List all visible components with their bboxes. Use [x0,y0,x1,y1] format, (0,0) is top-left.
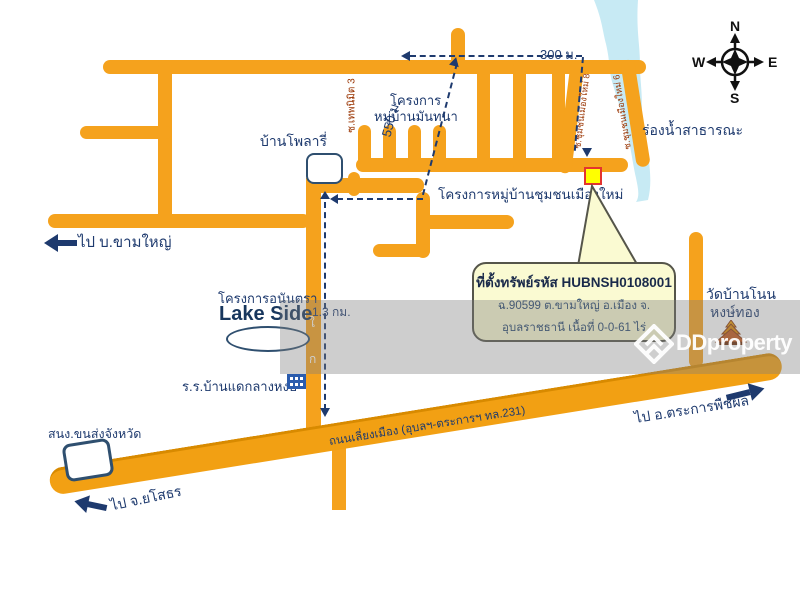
junction-dashed-line [337,198,423,200]
arrowhead-down-icon [582,148,592,157]
callout-property-code: ที่ตั้งทรัพย์รหัส HUBNSH0108001 [474,271,674,293]
arrowhead-down-icon [320,408,330,417]
callout-pointer [556,184,652,268]
ddproperty-logo-text: DDproperty [676,330,792,356]
distance-300m-label: 300 ม. [540,44,577,65]
compass-north-label: N [730,18,740,34]
road-left-vertical [158,60,172,228]
ban-polaris-label: บ้านโพลารี่ [260,131,327,153]
west-arrow-icon [44,234,80,252]
road-grid-tooth [358,125,371,172]
arrowhead-left-icon [401,51,410,61]
property-location-map: ถนนเลี่ยงเมือง (อุบลฯ-ตระการฯ ทล.231) ใ … [0,0,800,600]
road-grid-tooth-below [348,172,360,196]
ring-road-label: ถนนเลี่ยงเมือง (อุบลฯ-ตระการฯ ทล.231) [328,402,527,451]
road-grid-tooth [408,125,421,172]
road-grid-tooth [513,60,526,172]
road-short-east [420,215,514,229]
soi-thep-label: ซ.เทพนิมิต 3 [345,66,360,146]
southwest-arrow-icon [73,492,112,517]
road-west-horizontal [48,214,310,228]
direction-yasothon-label: ไป จ.ยโสธร [109,481,184,518]
arrowhead-up-icon [320,191,330,199]
school-label: ร.ร.บ้านแดกลางหงษ์ [182,376,297,397]
compass-west-label: W [692,54,705,70]
waterway-label: ร่องน้ำสาธารณะ [642,120,743,142]
transport-office-building [61,437,114,482]
school-icon [287,374,306,389]
distance-550m-line [422,63,458,195]
ban-polaris-building [306,153,343,184]
arrowhead-left-icon [330,194,338,204]
road-grid-tooth [477,60,490,172]
compass-east-label: E [768,54,777,70]
ddproperty-logo-icon [634,324,674,364]
road-left-stub [80,126,172,139]
direction-kham-yai-label: ไป บ.ขามใหญ่ [78,230,171,254]
mantana-label-line2: หมู่บ้านมันทนา [374,106,458,127]
property-marker [584,167,602,185]
road-stub-below-ring [332,446,346,510]
road-short-west-stub [373,244,430,257]
compass-south-label: S [730,90,739,106]
